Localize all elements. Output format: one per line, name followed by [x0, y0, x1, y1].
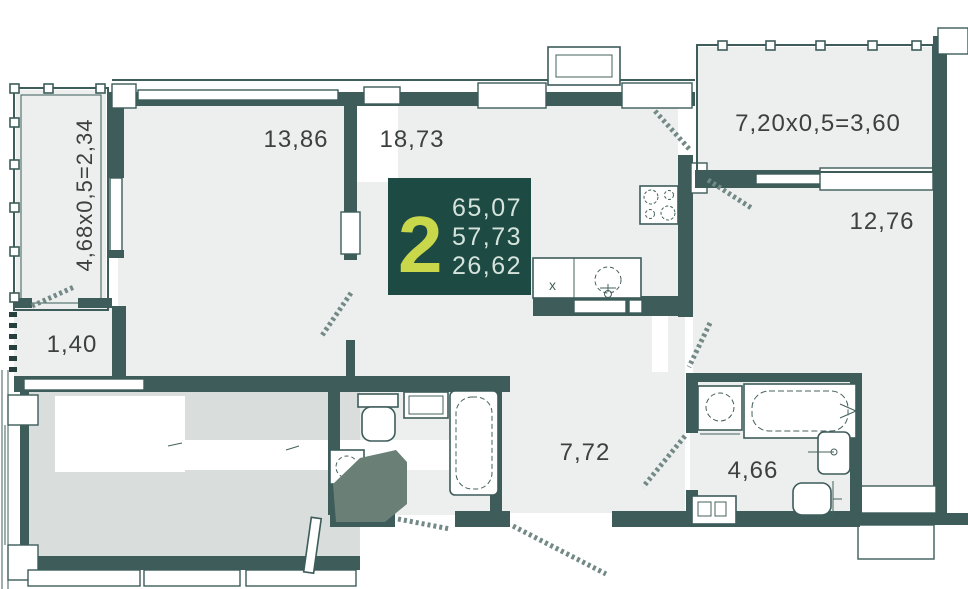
window-bedroom-top	[138, 90, 338, 100]
bathtub-icon	[450, 391, 498, 495]
door-inner-bathroom	[398, 519, 450, 529]
area-badge: 2 65,07 57,73 26,62	[388, 178, 531, 295]
balcony-top-floor	[697, 47, 933, 170]
floor-plan: x	[0, 0, 968, 589]
badge-rooms-count: 2	[398, 200, 443, 289]
window-living-1	[478, 83, 546, 108]
badge-area-living: 57,73	[452, 223, 522, 251]
vent-box-icon	[692, 496, 736, 524]
label-balcony-top: 7,20x0,5=3,60	[735, 110, 901, 137]
toilet-icon	[358, 394, 398, 441]
label-living-room: 18,73	[379, 126, 444, 153]
stove-icon	[640, 186, 678, 224]
kitchen-counter: x	[533, 258, 641, 298]
balcony-door-living	[622, 83, 692, 108]
washbasin-icon	[404, 392, 448, 418]
washing-machine-2-icon	[698, 386, 742, 434]
label-bathroom: 4,66	[728, 457, 779, 484]
label-room-right: 12,76	[849, 208, 914, 235]
floor-plan-canvas: x	[0, 0, 968, 589]
badge-area-rooms: 26,62	[452, 252, 522, 280]
badge-area-total: 65,07	[452, 194, 522, 222]
sink-mark: x	[549, 277, 556, 293]
door-entrance	[513, 526, 606, 574]
vent-shaft	[548, 47, 620, 85]
label-hallway: 7,72	[560, 439, 611, 466]
label-balcony-left: 4,68x0,5=2,34	[72, 118, 97, 271]
label-storage: 1,40	[47, 331, 98, 358]
label-bedroom-top: 13,86	[263, 126, 328, 153]
bathtub-2-icon	[744, 384, 856, 438]
